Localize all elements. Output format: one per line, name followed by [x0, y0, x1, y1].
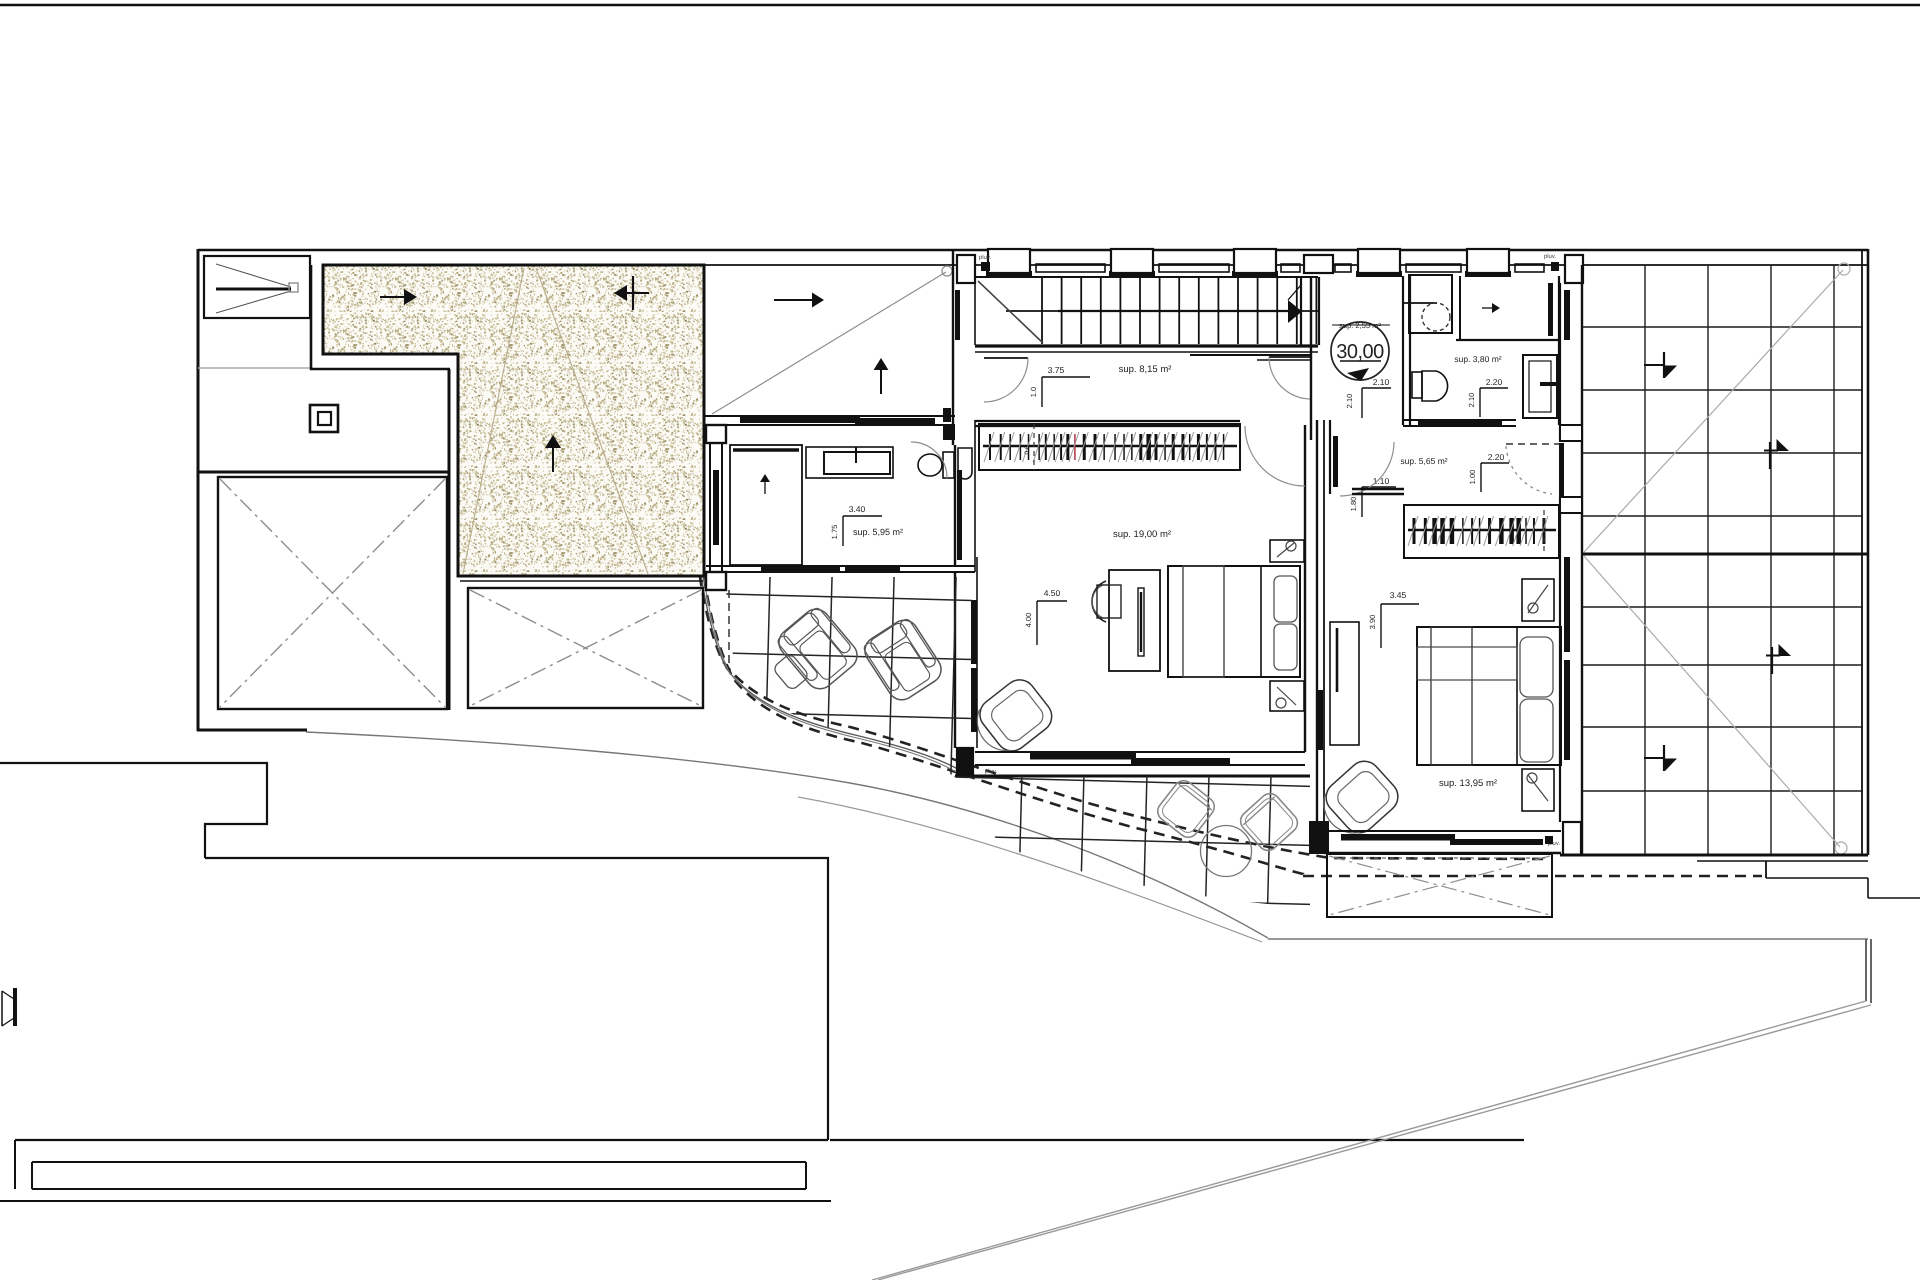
- svg-text:1.00: 1.00: [1468, 470, 1477, 485]
- svg-text:sup. 13,95 m²: sup. 13,95 m²: [1439, 778, 1497, 789]
- svg-text:3.90: 3.90: [1368, 615, 1377, 630]
- svg-text:3.40: 3.40: [849, 504, 866, 514]
- svg-text:sup. 19,00 m²: sup. 19,00 m²: [1113, 529, 1171, 540]
- svg-text:2.10: 2.10: [1467, 393, 1476, 408]
- svg-text:0.6: 0.6: [1024, 445, 1031, 454]
- svg-text:sup. 8,15 m²: sup. 8,15 m²: [1119, 364, 1172, 375]
- svg-text:pluv.: pluv.: [979, 254, 992, 261]
- svg-text:2.10: 2.10: [1373, 377, 1390, 387]
- svg-text:2.20: 2.20: [1486, 377, 1503, 387]
- svg-text:1.0: 1.0: [1029, 387, 1038, 397]
- svg-text:2.10: 2.10: [1345, 394, 1354, 409]
- svg-text:4.00: 4.00: [1024, 613, 1033, 628]
- svg-text:2.20: 2.20: [1488, 452, 1505, 462]
- svg-text:3.75: 3.75: [1048, 365, 1065, 375]
- svg-text:1.80: 1.80: [1349, 497, 1358, 512]
- svg-text:sup. 5,95 m²: sup. 5,95 m²: [853, 527, 903, 537]
- svg-text:pluv.: pluv.: [1544, 253, 1557, 260]
- svg-text:pluv.: pluv.: [985, 768, 998, 775]
- svg-text:sup. 5,65 m²: sup. 5,65 m²: [1400, 456, 1447, 466]
- svg-text:4.50: 4.50: [1044, 588, 1061, 598]
- svg-text:sup. 3,80 m²: sup. 3,80 m²: [1454, 354, 1501, 364]
- svg-text:3.45: 3.45: [1390, 590, 1407, 600]
- svg-text:1.75: 1.75: [830, 525, 839, 540]
- svg-text:30,00: 30,00: [1336, 341, 1384, 363]
